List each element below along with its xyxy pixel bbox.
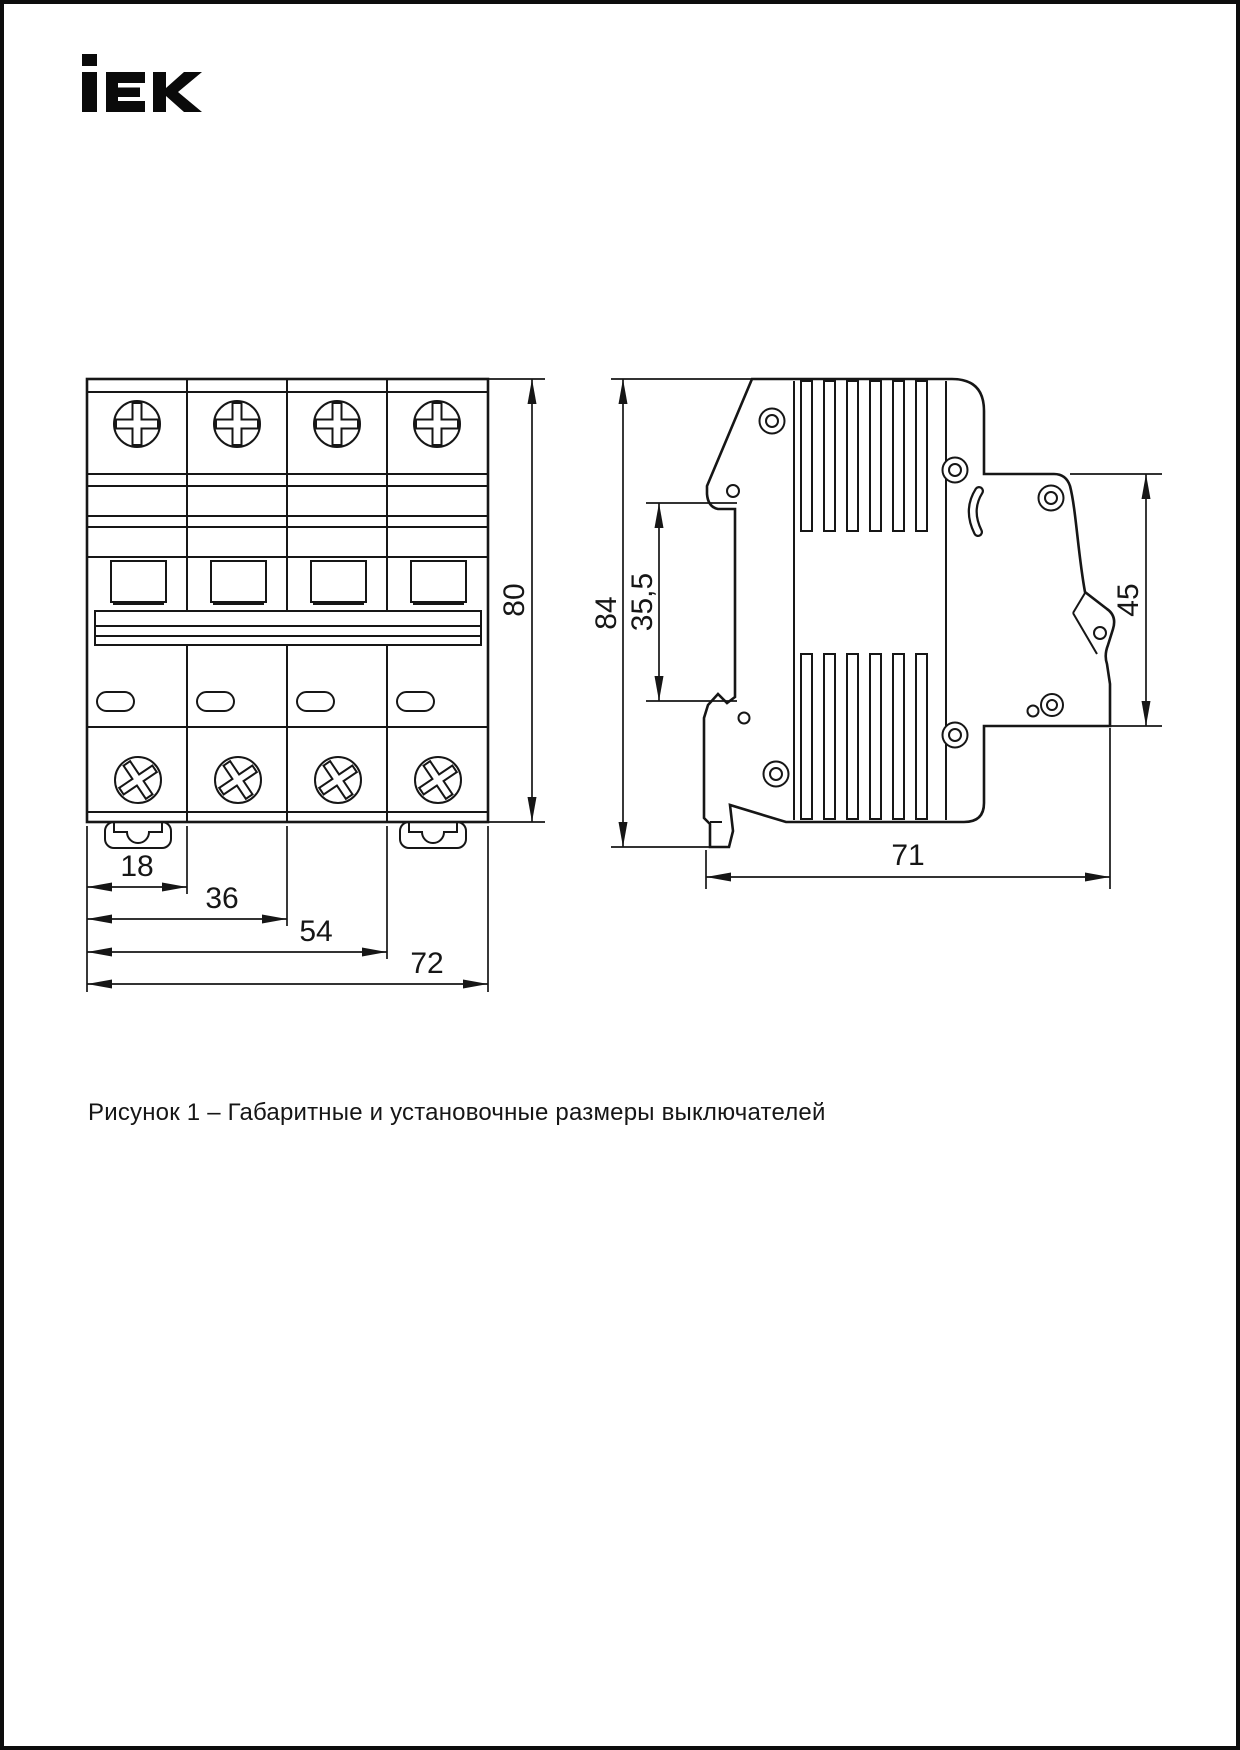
din-feet (105, 822, 466, 848)
technical-drawing: 80 18 36 54 72 (4, 4, 1240, 1750)
dim-label-36: 36 (205, 882, 238, 915)
dim-label-72: 72 (410, 947, 443, 980)
dim-label-71: 71 (891, 839, 924, 872)
pin-hole-bottom (739, 713, 750, 724)
pin-hole-top (727, 485, 739, 497)
toggle-tie-bar (95, 611, 481, 645)
side-view-drawing (704, 379, 1114, 847)
dim-label-80: 80 (498, 583, 531, 616)
dim-label-54: 54 (299, 915, 332, 948)
dim-label-18: 18 (120, 850, 153, 883)
dim-label-35-5: 35,5 (626, 573, 659, 631)
dim-label-45: 45 (1112, 583, 1145, 616)
dim-label-84: 84 (590, 596, 623, 629)
document-page: iEK (0, 0, 1240, 1750)
figure-caption: Рисунок 1 – Габаритные и установочные ра… (88, 1098, 988, 1128)
front-view-drawing (87, 379, 488, 848)
